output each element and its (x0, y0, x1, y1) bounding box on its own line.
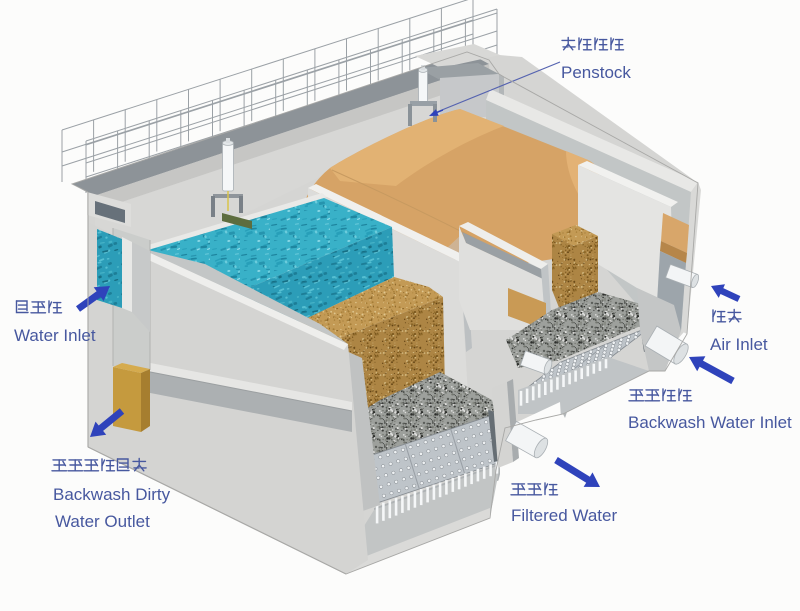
svg-text:Backwash Water Inlet: Backwash Water Inlet (628, 413, 792, 432)
svg-text:Air Inlet: Air Inlet (710, 335, 768, 354)
svg-text:Water Inlet: Water Inlet (14, 326, 96, 345)
svg-text:Water Outlet: Water Outlet (55, 512, 150, 531)
svg-text:Backwash Dirty: Backwash Dirty (53, 485, 171, 504)
svg-text:Filtered Water: Filtered Water (511, 506, 617, 525)
svg-text:Penstock: Penstock (561, 63, 631, 82)
